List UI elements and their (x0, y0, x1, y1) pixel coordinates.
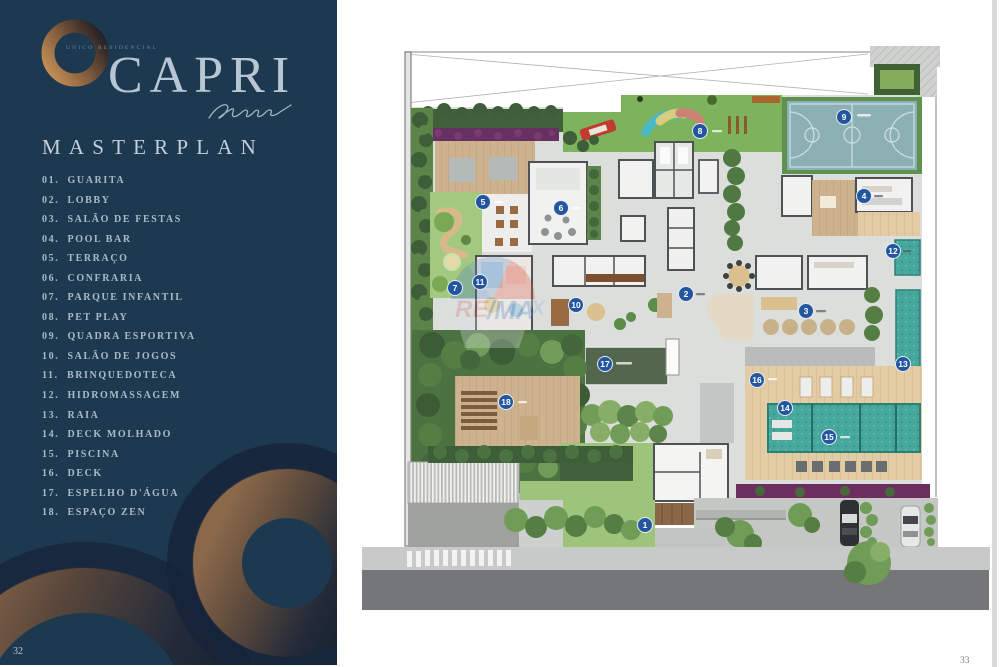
svg-text:10: 10 (571, 300, 581, 310)
svg-text:12: 12 (888, 246, 898, 256)
svg-text:33: 33 (960, 656, 970, 666)
svg-text:11: 11 (476, 277, 485, 287)
svg-text:8: 8 (698, 126, 703, 136)
svg-text:RE: RE (455, 296, 489, 323)
svg-text:7: 7 (453, 283, 458, 293)
svg-text:6: 6 (559, 203, 564, 213)
svg-text:13: 13 (898, 359, 908, 369)
svg-text:1: 1 (643, 520, 648, 530)
svg-text:18: 18 (501, 397, 511, 407)
svg-text:14: 14 (780, 403, 790, 413)
svg-text:5: 5 (481, 197, 486, 207)
svg-text:17: 17 (600, 359, 610, 369)
svg-text:4: 4 (862, 191, 867, 201)
svg-text:15: 15 (824, 432, 834, 442)
svg-text:/MA: /MA (486, 295, 535, 325)
svg-text:3: 3 (804, 306, 809, 316)
svg-text:2: 2 (684, 289, 689, 299)
svg-text:9: 9 (842, 112, 847, 122)
svg-text:16: 16 (752, 375, 762, 385)
svg-text:X: X (530, 297, 547, 320)
